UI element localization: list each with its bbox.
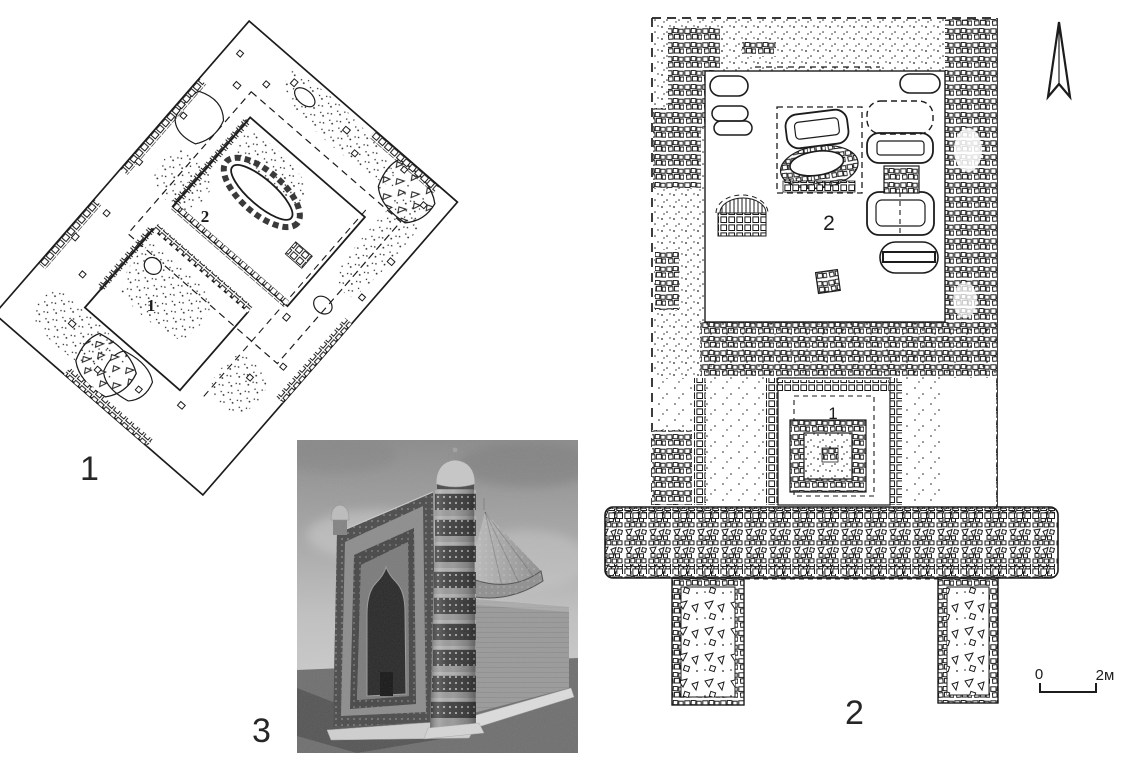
panel-3-label: 3 [252, 714, 271, 748]
scale-max-label: 2м [1096, 667, 1115, 684]
north-arrow-icon [1048, 22, 1070, 97]
courtyard [705, 71, 945, 322]
pier-legs [672, 578, 998, 705]
site-plan-rotated-group [0, 21, 457, 495]
scale-zero-label: 0 [1035, 666, 1043, 683]
central-structure [778, 378, 890, 505]
excavation-plan-panel: 0 2м 2 1 [596, 0, 1126, 768]
panel-1-label: 1 [80, 452, 99, 486]
room-2-label: 2 [201, 207, 210, 226]
panel-2-label: 2 [845, 696, 864, 730]
room-1-label: 1 [147, 296, 156, 315]
scale-bar: 0 2м [1035, 666, 1115, 692]
reconstruction-photo [297, 440, 578, 753]
middle-section [652, 378, 996, 505]
structure-1-label: 1 [828, 404, 837, 423]
photo-grain [297, 440, 578, 753]
courtyard-label: 2 [823, 212, 835, 235]
figure-page: 2 1 [0, 0, 1126, 768]
transverse-band [605, 507, 1058, 579]
